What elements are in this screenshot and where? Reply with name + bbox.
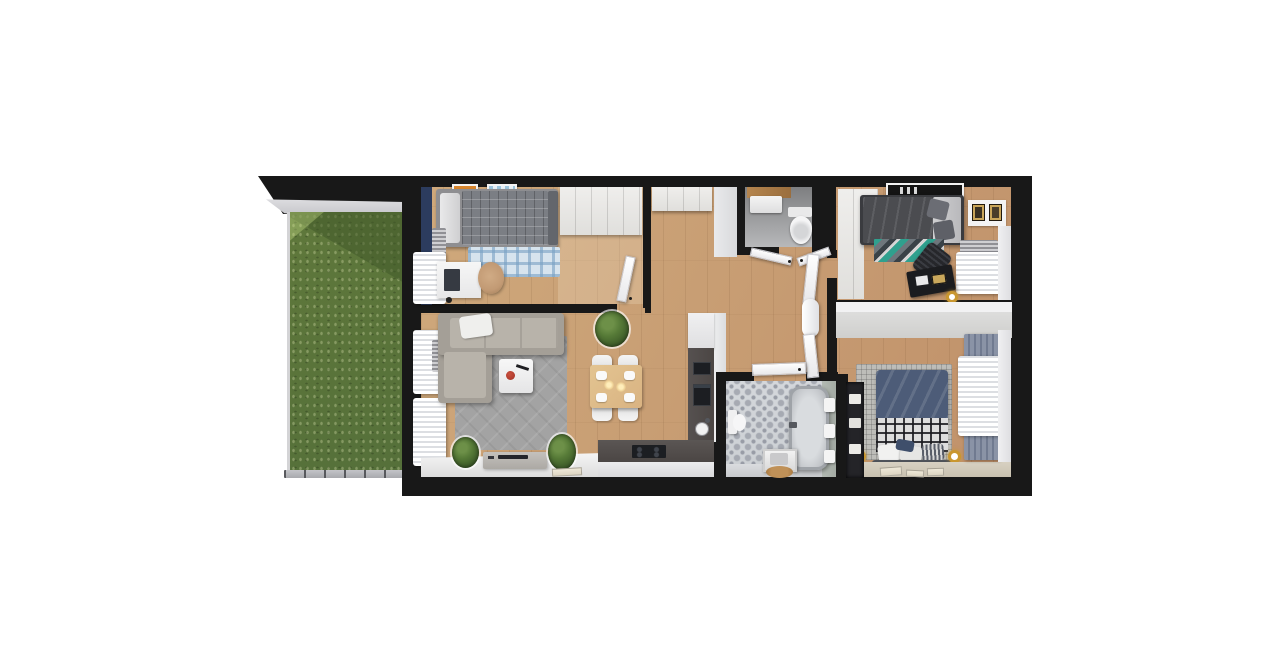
bedroom1-floor-lamp — [446, 297, 452, 303]
bedroom1-door-handle — [629, 297, 632, 300]
kitchen-oven — [693, 384, 711, 406]
bedroom1-wardrobe — [560, 187, 642, 235]
living-plant-top — [595, 311, 629, 347]
outer-wall-bottom — [402, 477, 1032, 496]
dining-candle-glow-1 — [604, 380, 614, 390]
bedroom1-bed-duvet — [462, 191, 548, 245]
bedroom3-linen-stack-2 — [849, 418, 861, 428]
bedroom1-bed-foot-blanket — [548, 191, 558, 245]
tv-cabinet-soundbar — [498, 455, 528, 459]
bathroom-wood-mat — [766, 466, 793, 478]
wall-bedroom1-living-end — [645, 304, 651, 313]
hall-door-bedroom2-handle — [800, 259, 803, 262]
bedroom2-desk-paper — [915, 275, 928, 286]
bedroom3-linen-stack-3 — [849, 444, 861, 454]
hall-builtin-cabinet — [652, 187, 712, 211]
dining-candle-glow-2 — [616, 382, 626, 392]
sofa-chaise-cushion — [444, 352, 486, 398]
hall-door-wc-handle — [788, 260, 791, 263]
kitchen-sink — [695, 422, 709, 436]
wall-hall-wc-white — [714, 187, 737, 257]
bedroom1-desk-chair — [478, 262, 504, 294]
dining-plate-3 — [596, 393, 607, 402]
kitchen-microwave — [693, 362, 711, 375]
bedroom3-book-1 — [880, 466, 903, 477]
bathroom-towel-3 — [824, 450, 835, 463]
kitchen-front-band — [598, 462, 714, 477]
bedroom2-picture-frame-1 — [972, 204, 985, 221]
kitchen-tall-cabinet-white — [688, 313, 714, 349]
bedroom3-top-wall-white — [836, 302, 1012, 312]
dining-plate-2 — [624, 371, 635, 380]
bedroom2-wall-art-detail — [900, 187, 920, 194]
hall-door-bathroom-handle — [798, 368, 801, 371]
bathroom-towel-1 — [824, 398, 835, 412]
kitchen-induction-hob — [632, 445, 666, 458]
bathroom-toilet-bowl — [733, 414, 746, 431]
wall-wc-right-block — [812, 187, 836, 257]
bedroom2-desk-laptop — [931, 273, 946, 285]
bathtub-faucet — [789, 422, 797, 428]
bedroom3-window-sill — [998, 330, 1011, 462]
living-magazine — [552, 467, 582, 477]
bedroom2-bed-duvet — [863, 197, 933, 243]
wc-washbasin — [750, 196, 782, 213]
living-window-curtain-2 — [413, 398, 446, 466]
coffee-table-red-bowl — [506, 371, 515, 380]
garden-fence — [284, 470, 404, 478]
bedroom1-desk-laptop — [444, 269, 460, 291]
bedroom3-linen-stack-1 — [849, 394, 861, 404]
bedroom2-picture-frame-2 — [989, 204, 1002, 221]
floor-plan-render — [0, 0, 1280, 667]
living-plant-right — [548, 434, 576, 470]
dining-plate-1 — [596, 371, 607, 380]
outer-wall-right — [1011, 176, 1032, 496]
bathroom-towel-2 — [824, 424, 835, 438]
kitchen-faucet — [705, 418, 710, 423]
bedroom3-book-3 — [927, 468, 944, 477]
living-plant-left — [452, 437, 479, 468]
wall-bedroom1-hall — [643, 187, 651, 308]
bathroom-vanity-basin — [770, 453, 788, 465]
wall-bedroom1-living — [421, 304, 617, 313]
wall-wc-left — [737, 187, 745, 255]
bedroom2-window-sill — [998, 226, 1011, 300]
wall-bath-left — [716, 374, 726, 478]
sofa-white-pillow — [459, 313, 494, 339]
entrance-door-pivot — [802, 299, 819, 337]
bedroom3-bed-duvet-navy — [876, 370, 948, 422]
tv-cabinet-item — [488, 456, 494, 459]
bedroom2-window-curtain — [956, 252, 1004, 294]
dining-plate-4 — [624, 393, 635, 402]
bedroom3-book-2 — [906, 470, 924, 478]
